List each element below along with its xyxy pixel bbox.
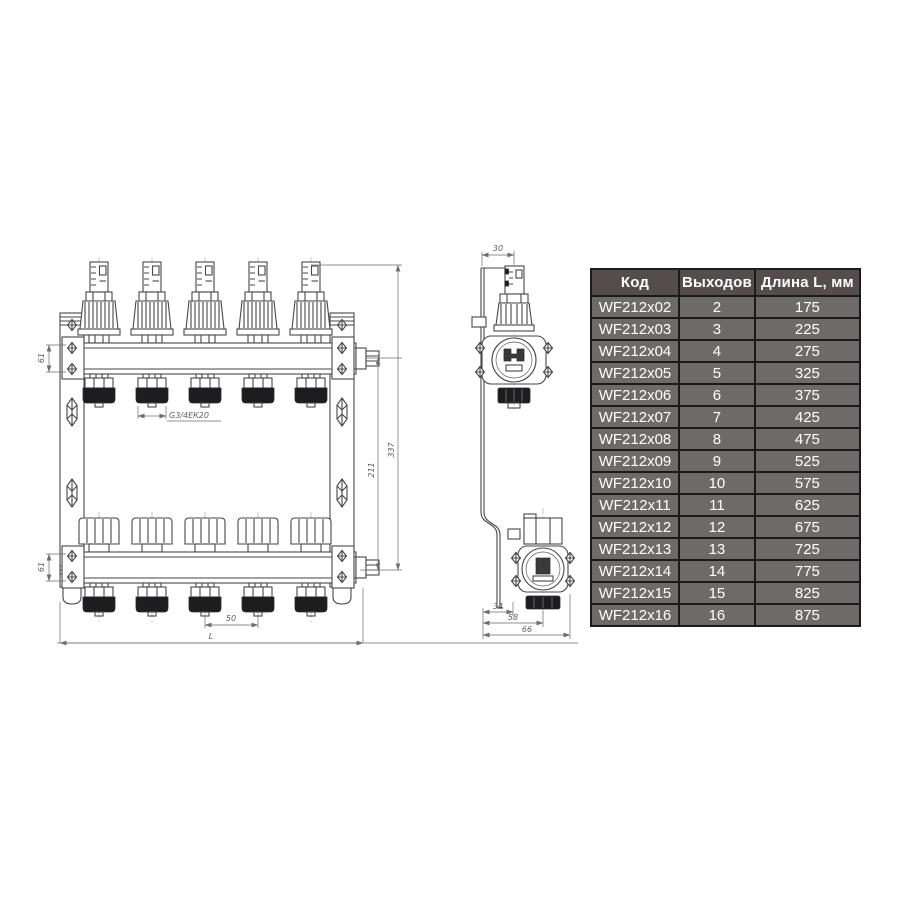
cell-outputs: 3: [679, 318, 755, 340]
table-row: WF212x1313725: [591, 538, 860, 560]
cell-outputs: 14: [679, 560, 755, 582]
dim-label-58: 58: [508, 613, 518, 622]
cell-length: 275: [755, 340, 860, 362]
cell-code: WF212x16: [591, 604, 679, 626]
outlet-connector: [189, 583, 221, 616]
table-row: WF212x077425: [591, 406, 860, 428]
cell-length: 675: [755, 516, 860, 538]
cell-code: WF212x07: [591, 406, 679, 428]
table-row: WF212x1010575: [591, 472, 860, 494]
spec-table-body: WF212x022175WF212x033225WF212x044275WF21…: [591, 296, 860, 626]
outlet-connector: [295, 374, 327, 407]
flow-meter: [290, 257, 332, 343]
cell-outputs: 12: [679, 516, 755, 538]
dim-label-337: 337: [387, 441, 396, 457]
table-row: WF212x044275: [591, 340, 860, 362]
table-row: WF212x099525: [591, 450, 860, 472]
cell-outputs: 7: [679, 406, 755, 428]
cell-outputs: 4: [679, 340, 755, 362]
slot-icon: [337, 479, 347, 507]
dim-label-211: 211: [367, 462, 376, 477]
cell-length: 175: [755, 296, 860, 318]
side-view: 30 34 58 66: [472, 244, 575, 639]
cell-code: WF212x15: [591, 582, 679, 604]
dim-label-30: 30: [493, 244, 503, 253]
table-row: WF212x066375: [591, 384, 860, 406]
table-row: WF212x1212675: [591, 516, 860, 538]
dim-label-61-bottom: 61: [37, 562, 46, 572]
table-row: WF212x1616875: [591, 604, 860, 626]
cell-outputs: 16: [679, 604, 755, 626]
cell-length: 325: [755, 362, 860, 384]
dim-label-50: 50: [226, 614, 236, 623]
flow-meter: [78, 257, 120, 343]
outlet-connector: [83, 374, 115, 407]
table-row: WF212x033225: [591, 318, 860, 340]
table-row: WF212x022175: [591, 296, 860, 318]
cell-length: 875: [755, 604, 860, 626]
cell-length: 225: [755, 318, 860, 340]
table-row: WF212x1111625: [591, 494, 860, 516]
outlet-connector: [242, 374, 274, 407]
slot-icon: [337, 398, 347, 426]
cell-length: 475: [755, 428, 860, 450]
dim-label-61-top: 61: [37, 353, 46, 363]
side-top-assembly: [472, 250, 546, 412]
dim-label-thread: G3/4ЕК20: [169, 411, 209, 420]
header-length: Длина L, мм: [755, 269, 860, 296]
cell-outputs: 8: [679, 428, 755, 450]
table-row: WF212x1414775: [591, 560, 860, 582]
outlet-connector: [189, 374, 221, 407]
valve-cap: [185, 518, 225, 552]
valve-cap: [291, 518, 331, 552]
side-bottom-assembly: [508, 508, 568, 622]
manifold-spec-sheet: 61 61 G3/4ЕК20 50 L 211 337: [0, 0, 900, 900]
slot-icon: [67, 479, 77, 507]
cell-outputs: 9: [679, 450, 755, 472]
cell-code: WF212x05: [591, 362, 679, 384]
header-outputs: Выходов: [679, 269, 755, 296]
cell-length: 625: [755, 494, 860, 516]
cell-length: 825: [755, 582, 860, 604]
cell-outputs: 10: [679, 472, 755, 494]
slot-icon: [67, 398, 77, 426]
outlet-connector: [83, 583, 115, 616]
cell-outputs: 2: [679, 296, 755, 318]
table-row: WF212x055325: [591, 362, 860, 384]
table-row: WF212x088475: [591, 428, 860, 450]
cell-length: 525: [755, 450, 860, 472]
cell-length: 775: [755, 560, 860, 582]
cell-outputs: 13: [679, 538, 755, 560]
cell-code: WF212x11: [591, 494, 679, 516]
cell-length: 725: [755, 538, 860, 560]
valve-cap: [132, 518, 172, 552]
cell-code: WF212x09: [591, 450, 679, 472]
dim-label-L: L: [209, 632, 213, 641]
cell-length: 425: [755, 406, 860, 428]
dim-label-34: 34: [493, 602, 503, 611]
cell-code: WF212x12: [591, 516, 679, 538]
flow-meter: [184, 257, 226, 343]
dim-label-66: 66: [522, 625, 532, 634]
outlet-connector: [242, 583, 274, 616]
table-header-row: Код Выходов Длина L, мм: [591, 269, 860, 296]
cell-outputs: 6: [679, 384, 755, 406]
cell-code: WF212x03: [591, 318, 679, 340]
cell-outputs: 15: [679, 582, 755, 604]
valve-cap: [238, 518, 278, 552]
outlet-connector: [295, 583, 327, 616]
cell-length: 575: [755, 472, 860, 494]
flow-meter: [131, 257, 173, 343]
outlet-connector: [136, 374, 168, 407]
cell-code: WF212x14: [591, 560, 679, 582]
cell-code: WF212x04: [591, 340, 679, 362]
outlet-connector: [136, 583, 168, 616]
cell-code: WF212x06: [591, 384, 679, 406]
cell-code: WF212x08: [591, 428, 679, 450]
table-row: WF212x1515825: [591, 582, 860, 604]
cell-outputs: 11: [679, 494, 755, 516]
cell-outputs: 5: [679, 362, 755, 384]
cell-code: WF212x10: [591, 472, 679, 494]
valve-cap: [79, 518, 119, 552]
cell-code: WF212x13: [591, 538, 679, 560]
flow-meter: [237, 257, 279, 343]
cell-code: WF212x02: [591, 296, 679, 318]
spec-table: Код Выходов Длина L, мм WF212x022175WF21…: [590, 268, 861, 627]
cell-length: 375: [755, 384, 860, 406]
header-code: Код: [591, 269, 679, 296]
